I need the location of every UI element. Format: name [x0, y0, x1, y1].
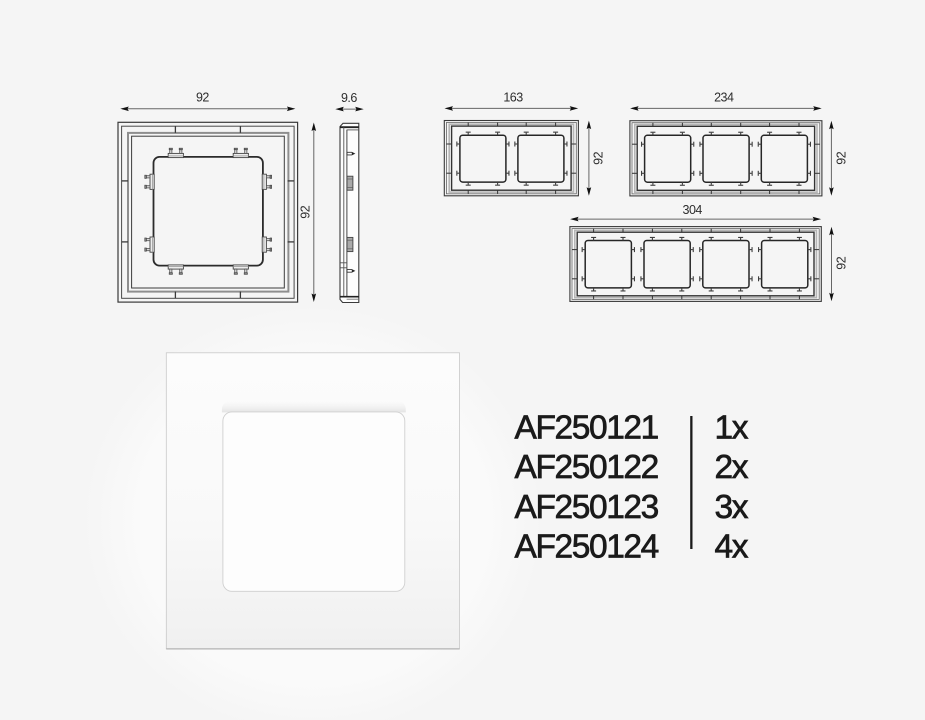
svg-text:304: 304	[683, 203, 703, 217]
svg-text:AF250121: AF250121	[515, 409, 658, 446]
svg-text:1x: 1x	[715, 409, 749, 446]
svg-text:92: 92	[299, 205, 313, 218]
svg-text:4x: 4x	[715, 529, 749, 566]
svg-text:AF250122: AF250122	[515, 449, 658, 486]
svg-text:2x: 2x	[715, 449, 749, 486]
svg-text:AF250123: AF250123	[515, 489, 659, 526]
svg-text:92: 92	[835, 256, 849, 269]
svg-text:9.6: 9.6	[341, 91, 357, 105]
svg-text:92: 92	[592, 151, 606, 164]
svg-text:AF250124: AF250124	[515, 529, 659, 566]
svg-text:3x: 3x	[715, 489, 749, 526]
svg-text:234: 234	[714, 91, 734, 105]
svg-text:163: 163	[503, 91, 523, 105]
svg-text:92: 92	[196, 90, 209, 104]
svg-text:92: 92	[835, 151, 849, 164]
